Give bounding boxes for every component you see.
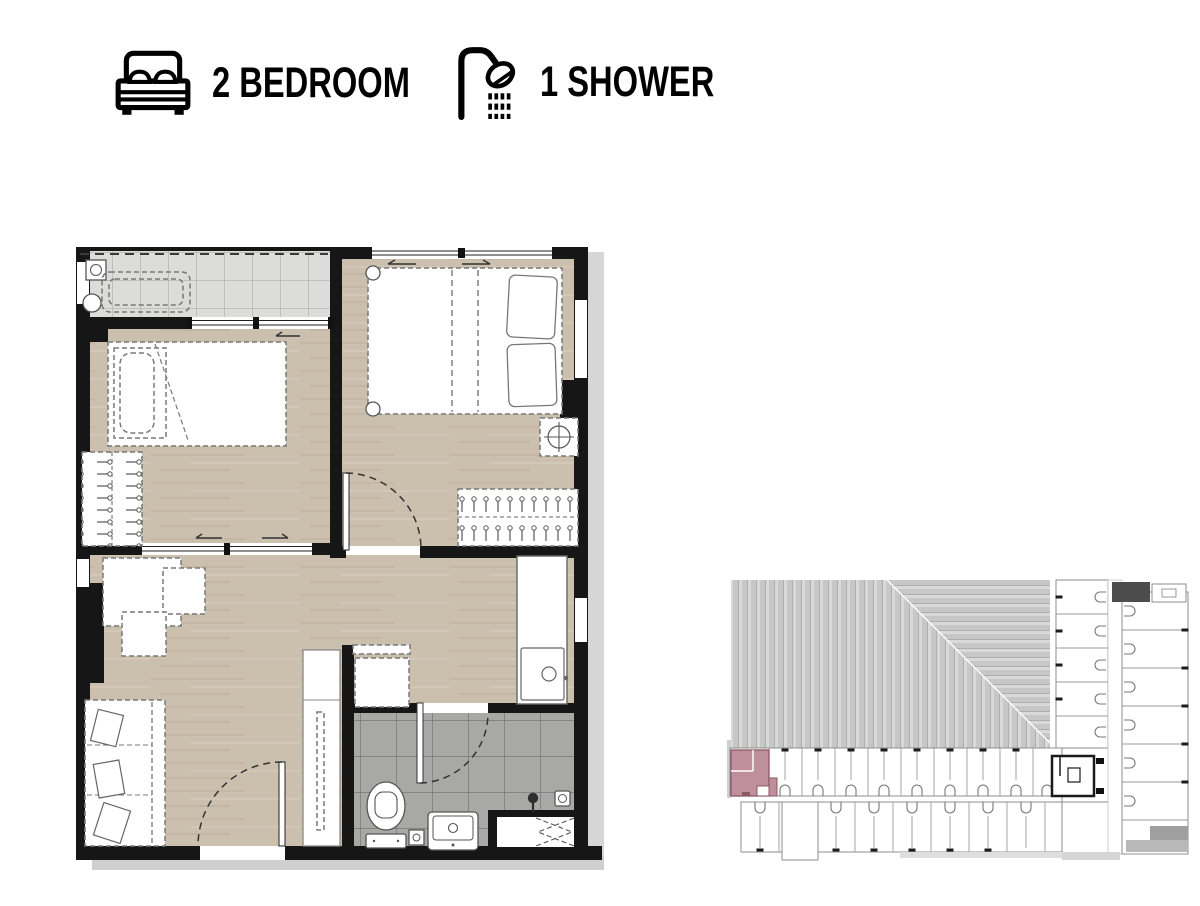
toilet-tank (366, 834, 406, 848)
tall-cabinet (303, 650, 340, 846)
key-plan (727, 580, 1189, 860)
master-door-leaf (343, 473, 349, 550)
dining-bench (353, 645, 410, 654)
floor-drain (555, 791, 570, 806)
cushion (93, 760, 125, 798)
unit-plan (76, 247, 604, 870)
unit-floor-plan (0, 0, 1200, 906)
kitchen (517, 556, 568, 704)
bathroom-door-opening (418, 703, 488, 713)
toilet-bowl (367, 782, 405, 830)
flush-plate (409, 830, 424, 845)
ac-ledge (497, 817, 536, 847)
dining-table (355, 658, 409, 707)
keyplan-lobby (782, 802, 818, 860)
pillow (507, 343, 557, 407)
floor-pipe (83, 294, 101, 312)
keyplan-dark-block (1112, 582, 1150, 602)
plan-shadow-right (588, 252, 604, 864)
pillow (506, 275, 557, 339)
keyplan-wing-right-column (1122, 592, 1188, 854)
faucet (564, 676, 568, 680)
desk-return (163, 568, 205, 614)
bathroom-door-leaf (417, 703, 423, 783)
desk-chair (122, 612, 166, 656)
floorplan-page: 2 BEDROOM 1 SHOWER (0, 0, 1200, 906)
keyplan-stair-core (1052, 756, 1094, 796)
shower-head (528, 793, 538, 803)
single-bed (108, 342, 286, 446)
keyplan-wing-left-column (1056, 580, 1108, 748)
entrance-opening (200, 846, 285, 860)
ac-ledge-hatch (536, 817, 574, 847)
balcony-sliding-door (190, 318, 330, 328)
entrance-door-leaf (279, 762, 285, 846)
keyplan-wing-corridor (1108, 580, 1122, 854)
